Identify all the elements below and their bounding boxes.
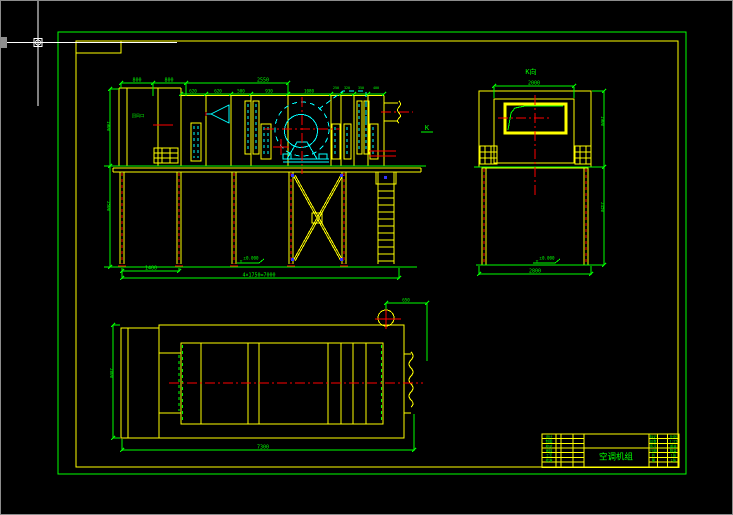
title-block-cell: 设计	[546, 434, 553, 439]
component-label: 回风口	[132, 113, 145, 119]
dim-label: 1080	[304, 89, 315, 94]
title-block-cell: 比例	[670, 434, 677, 439]
front-elevation-view: 800 800 2550 620 620 500 930 1080 250 32…	[104, 78, 433, 281]
title-block: 空调机组 设计 制图 校对 审核 工艺 批准 标记 比例 处数 1:25 签字 …	[542, 434, 679, 468]
nozzle-funnel	[206, 105, 229, 123]
dim-label: 620	[189, 89, 197, 94]
dim-label: 800	[132, 78, 141, 84]
title-block-cell: 工艺	[546, 453, 553, 458]
dim-label: 350	[358, 86, 364, 90]
drawing-title: 空调机组	[599, 452, 634, 463]
side-dims: 2000 1900 2450 2800 ▽ ±0.000	[477, 81, 606, 277]
title-block-cell: 校对	[546, 443, 553, 448]
title-block-cell: 重量	[670, 443, 677, 448]
dim-label: 2450	[600, 202, 605, 213]
model-space-canvas[interactable]: 800 800 2550 620 620 500 930 1080 250 32…	[1, 1, 733, 515]
title-block-cell: 批准	[546, 457, 553, 462]
level-note: ±0.000	[243, 256, 259, 261]
dim-label: 2800	[529, 269, 541, 275]
front-dim-chain-top: 800 800 2550 620 620 500 930 1080 250 32…	[119, 78, 386, 97]
title-block-cell: 1张	[671, 453, 677, 458]
title-block-cell: 日期	[650, 448, 657, 453]
dim-label: 250	[333, 86, 339, 90]
front-dim-chain-bottom: 1400 4×1750=7000	[120, 266, 401, 281]
dim-label: 1400	[145, 266, 157, 272]
window-edge-artifact	[1, 37, 7, 48]
centrifugal-fan	[275, 91, 366, 162]
dim-label: 2550	[257, 78, 269, 84]
dim-label: 500	[237, 89, 245, 94]
dim-label: 4×1750=7000	[242, 273, 275, 279]
dim-label: 320	[344, 86, 350, 90]
plan-housing	[121, 310, 413, 438]
dim-label: 930	[265, 89, 273, 94]
dim-label: 2500	[106, 201, 111, 212]
plan-dims: 2800 7300 650	[109, 298, 429, 453]
title-block-cell: 签字	[650, 443, 657, 448]
title-block-cell: 1:25	[669, 440, 677, 444]
side-view: K向 2000 1900 2450	[474, 67, 606, 276]
drawing-frame	[58, 32, 686, 474]
dim-label: 650	[402, 298, 410, 303]
title-block-cell: 处数	[650, 439, 657, 444]
side-base	[476, 168, 593, 265]
title-block-cell: 1张	[671, 457, 677, 462]
title-block-cell: 标记	[650, 434, 657, 439]
title-block-cell: 审核	[546, 448, 553, 453]
dim-label: 800	[164, 78, 173, 84]
dim-label: 1900	[600, 116, 605, 127]
dim-label: 2800	[109, 368, 114, 379]
view-label: K向	[525, 67, 536, 76]
title-block-cell: 制图	[546, 439, 553, 444]
front-dim-chain-left: 1900 2500	[104, 87, 119, 269]
dim-label: 620	[214, 89, 222, 94]
view-arrow-label: K	[425, 124, 430, 132]
dim-label: 1900	[106, 121, 111, 132]
plan-view: 2800 7300 650	[109, 298, 429, 453]
dim-label: 7300	[257, 445, 269, 451]
support-structure	[109, 166, 426, 267]
cad-viewport[interactable]: 800 800 2550 620 620 500 930 1080 250 32…	[0, 0, 733, 515]
level-note: ±0.000	[539, 256, 555, 261]
title-block-cell: 数量	[670, 448, 677, 453]
dim-label: 400	[373, 86, 379, 90]
dim-label: 2000	[528, 81, 540, 87]
plan-centerlines	[169, 310, 423, 383]
